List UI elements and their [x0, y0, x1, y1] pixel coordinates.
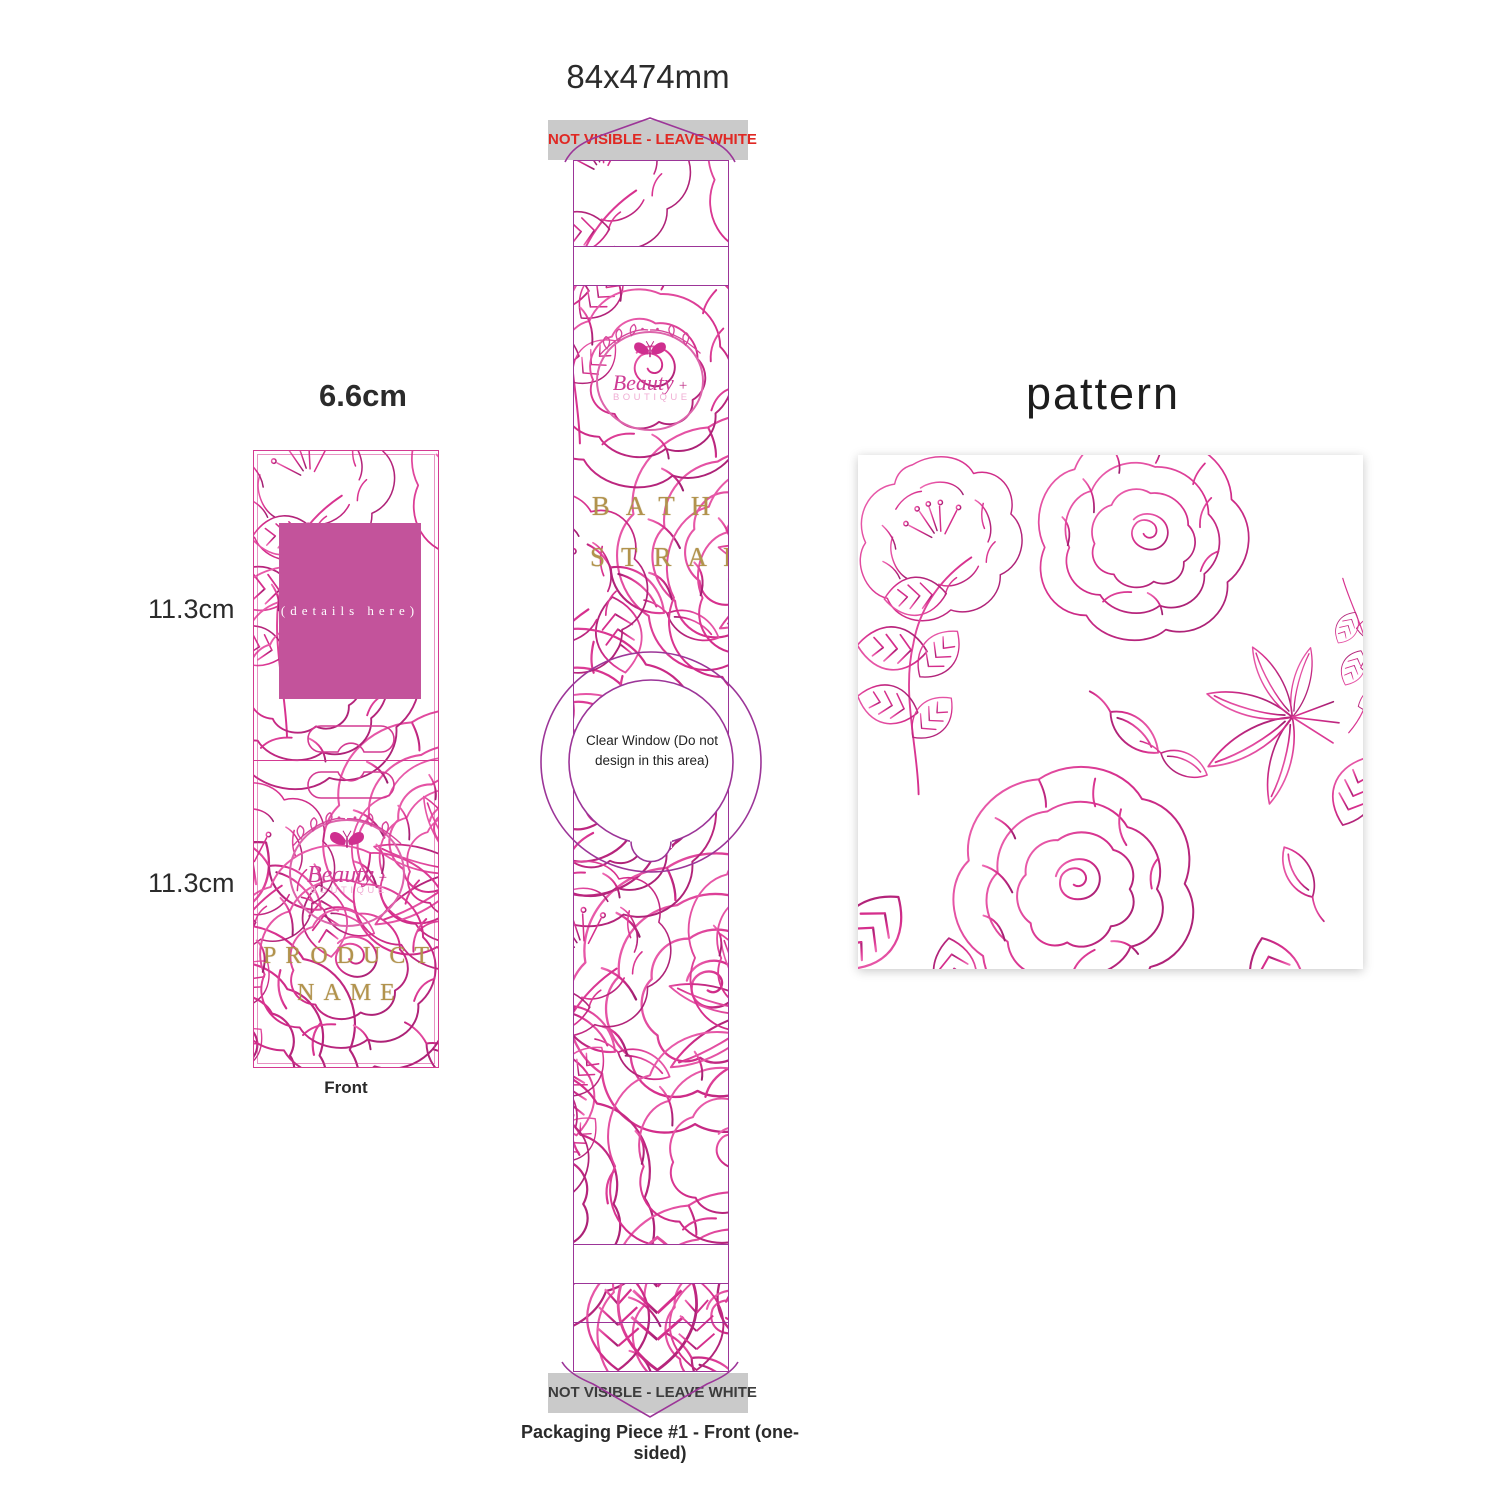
clear-window-note: Clear Window (Do not design in this area…: [571, 731, 733, 772]
logo-sprig-butterfly-icon: [592, 319, 708, 365]
strap-fold-zone-top: [573, 246, 729, 286]
pattern-swatch: [858, 455, 1363, 969]
strap-fold-line-bottom: [573, 1322, 729, 1323]
strap-caption: Packaging Piece #1 - Front (one-sided): [500, 1422, 820, 1464]
brand-logo: Beauty+ BOUTIQUE: [285, 807, 409, 931]
euro-hang-slot-cut: [254, 721, 439, 803]
details-placeholder-text: (details here): [279, 603, 421, 619]
packaging-proof-canvas: 6.6cm 11.3cm 11.3cm (details here) Beaut: [0, 0, 1500, 1500]
logo-subtitle: BOUTIQUE: [285, 885, 409, 896]
strap-fold-zone-bottom: [573, 1244, 729, 1284]
front-caption: Front: [253, 1078, 439, 1098]
strap-size-dimension: 84x474mm: [548, 58, 748, 96]
front-height-dimension-top: 11.3cm: [148, 594, 235, 625]
product-name-placeholder: PRODUCT NAME: [254, 943, 438, 1017]
front-width-dimension: 6.6cm: [253, 378, 473, 414]
logo-subtitle: BOUTIQUE: [592, 392, 708, 403]
die-cut-tab-outline-bottom: [548, 1358, 748, 1420]
pattern-swatch-title: pattern: [948, 368, 1258, 420]
logo-sprig-butterfly-icon: [285, 807, 409, 857]
pattern-swatch-artwork: [858, 455, 1363, 969]
front-panel-artwork: (details here) Beauty+ BOUTIQUE PRODUCT …: [253, 450, 439, 1068]
details-placeholder-box: (details here): [279, 523, 421, 699]
plus-icon: +: [379, 870, 387, 886]
front-height-dimension-bottom: 11.3cm: [148, 868, 235, 899]
brand-logo: Beauty+ BOUTIQUE: [592, 319, 708, 435]
die-cut-tab-outline-top: [548, 110, 748, 162]
strap-product-title: BATH STRAP: [574, 491, 728, 593]
